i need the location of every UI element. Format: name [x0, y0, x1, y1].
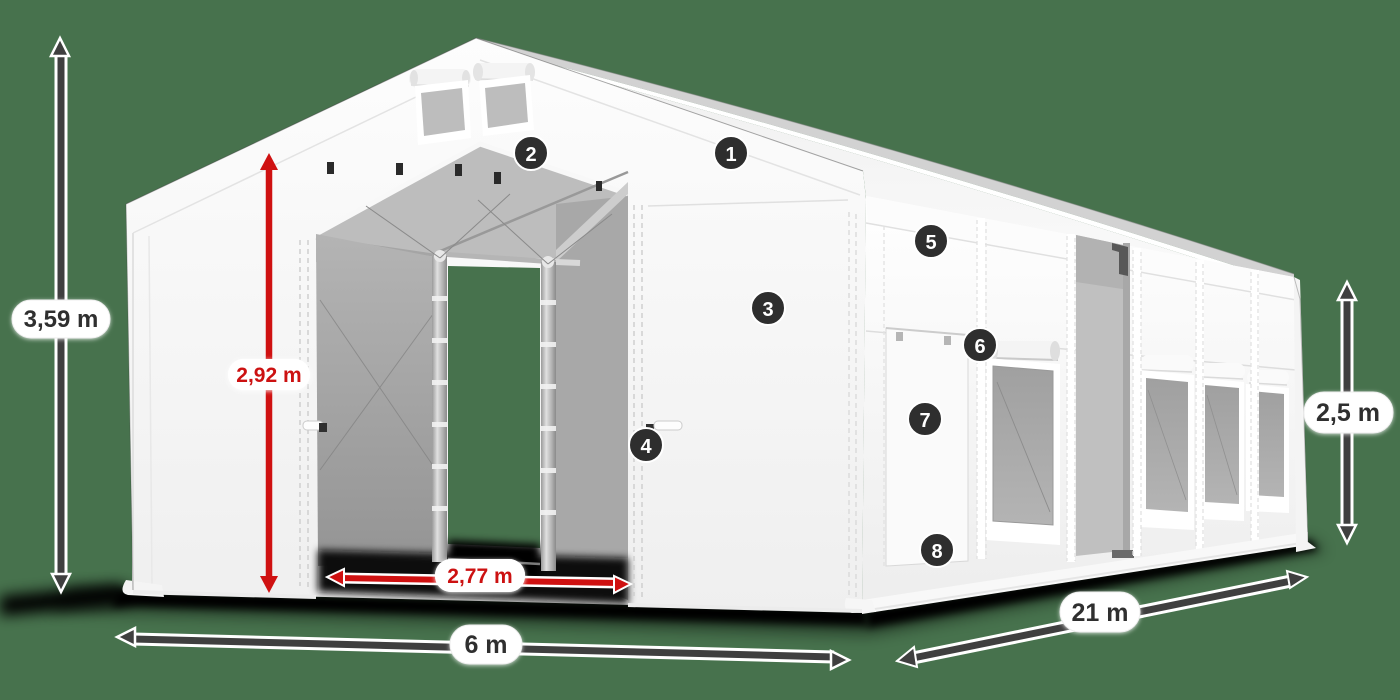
- svg-text:7: 7: [919, 410, 930, 432]
- svg-text:2,77 m: 2,77 m: [447, 565, 512, 588]
- svg-text:2,92 m: 2,92 m: [236, 364, 301, 387]
- svg-text:2: 2: [525, 144, 536, 166]
- svg-text:6 m: 6 m: [464, 631, 507, 659]
- svg-text:5: 5: [925, 232, 936, 254]
- svg-text:2,5 m: 2,5 m: [1316, 399, 1380, 427]
- svg-text:4: 4: [640, 436, 652, 458]
- svg-text:1: 1: [725, 144, 736, 166]
- svg-text:3: 3: [762, 299, 773, 321]
- svg-text:21 m: 21 m: [1072, 599, 1129, 627]
- svg-text:3,59 m: 3,59 m: [24, 306, 99, 333]
- svg-text:8: 8: [931, 541, 942, 563]
- svg-text:6: 6: [974, 336, 985, 358]
